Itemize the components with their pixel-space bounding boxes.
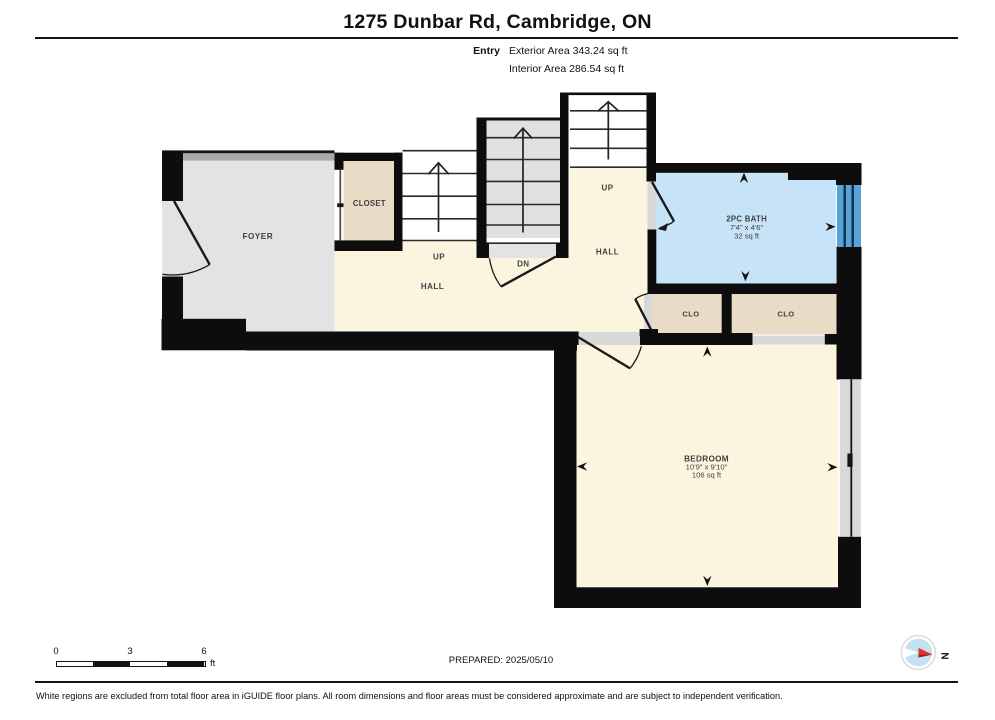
svg-text:7'4" x 4'6": 7'4" x 4'6" xyxy=(730,223,764,232)
svg-text:DN: DN xyxy=(517,260,529,269)
svg-text:CLO: CLO xyxy=(777,310,794,319)
svg-text:UP: UP xyxy=(602,183,614,192)
svg-text:32 sq ft: 32 sq ft xyxy=(734,232,760,241)
svg-text:HALL: HALL xyxy=(421,282,444,291)
svg-text:UP: UP xyxy=(433,253,445,262)
svg-text:106 sq ft: 106 sq ft xyxy=(692,471,722,480)
svg-text:HALL: HALL xyxy=(596,248,619,257)
svg-text:FOYER: FOYER xyxy=(242,232,273,241)
svg-text:CLOSET: CLOSET xyxy=(353,199,386,208)
svg-text:N: N xyxy=(939,652,950,659)
svg-text:CLO: CLO xyxy=(682,310,699,319)
